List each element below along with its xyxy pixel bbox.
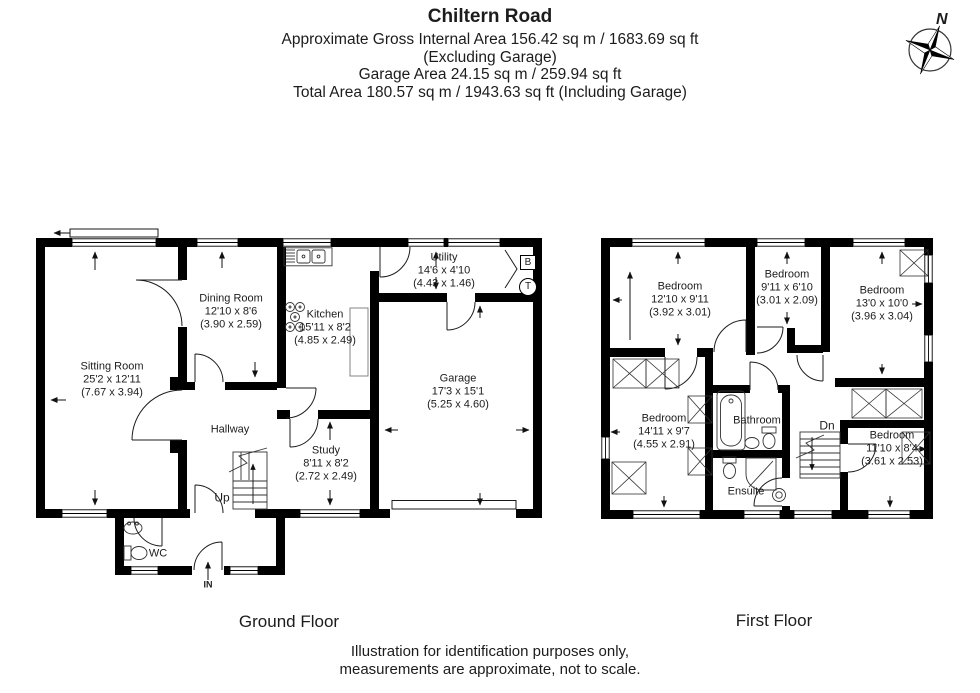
room-label-bedroom4: Bedroom 14'11 x 9'7 (4.55 x 2.91) (633, 413, 695, 452)
stairs-up (229, 448, 267, 509)
bathroom-toilet-icon (762, 427, 776, 449)
room-label-study: Study 8'11 x 8'2 (2.72 x 2.49) (295, 445, 357, 484)
room-label-bedroom2: Bedroom 9'11 x 6'10 (3.01 x 2.09) (756, 269, 818, 308)
entrance-label: IN (204, 579, 213, 592)
room-label-kitchen: Kitchen 15'11 x 8'2 (4.85 x 2.49) (294, 309, 356, 348)
stairs-down (796, 432, 840, 478)
room-label-bathroom: Bathroom (733, 415, 781, 428)
kitchen-sink-icon (284, 248, 332, 266)
bathroom-basin-icon (745, 438, 759, 449)
boiler-badge: B (520, 255, 536, 270)
bifold-door (505, 250, 517, 288)
ground-floor-caption: Ground Floor (239, 612, 339, 632)
room-label-bedroom3: Bedroom 13'0 x 10'0 (3.96 x 3.04) (851, 285, 913, 324)
tank-badge: T (519, 278, 537, 296)
ensuite-toilet-icon (723, 457, 736, 479)
first-floor-caption: First Floor (736, 611, 813, 631)
room-label-wc: WC (149, 548, 167, 561)
room-label-dining-room: Dining Room 12'10 x 8'6 (3.90 x 2.59) (199, 293, 263, 332)
floorplan-page: Chiltern Road Approximate Gross Internal… (0, 0, 980, 693)
disclaimer-line2: measurements are approximate, not to sca… (0, 661, 980, 679)
room-label-utility: Utility 14'6 x 4'10 (4.43 x 1.46) (413, 252, 475, 291)
garage-door (392, 501, 516, 510)
room-label-hallway: Hallway (211, 424, 250, 437)
stairs-up-label: Up (214, 492, 229, 505)
room-label-bedroom1: Bedroom 12'10 x 9'11 (3.92 x 3.01) (649, 281, 711, 320)
room-label-bedroom5: Bedroom 11'10 x 8'4 (3.61 x 2.53) (861, 430, 923, 469)
wc-basin-icon (124, 522, 142, 534)
room-label-garage: Garage 17'3 x 15'1 (5.25 x 4.60) (427, 373, 489, 412)
ensuite-basin-icon (773, 489, 786, 502)
wc-toilet-icon (124, 546, 147, 560)
disclaimer-line1: Illustration for identification purposes… (0, 643, 980, 661)
room-label-sitting-room: Sitting Room 25'2 x 12'11 (7.67 x 3.94) (81, 361, 144, 400)
stairs-down-label: Dn (819, 420, 834, 433)
room-label-ensuite: Ensuite (728, 486, 765, 499)
floor-plans-drawing (0, 0, 980, 693)
